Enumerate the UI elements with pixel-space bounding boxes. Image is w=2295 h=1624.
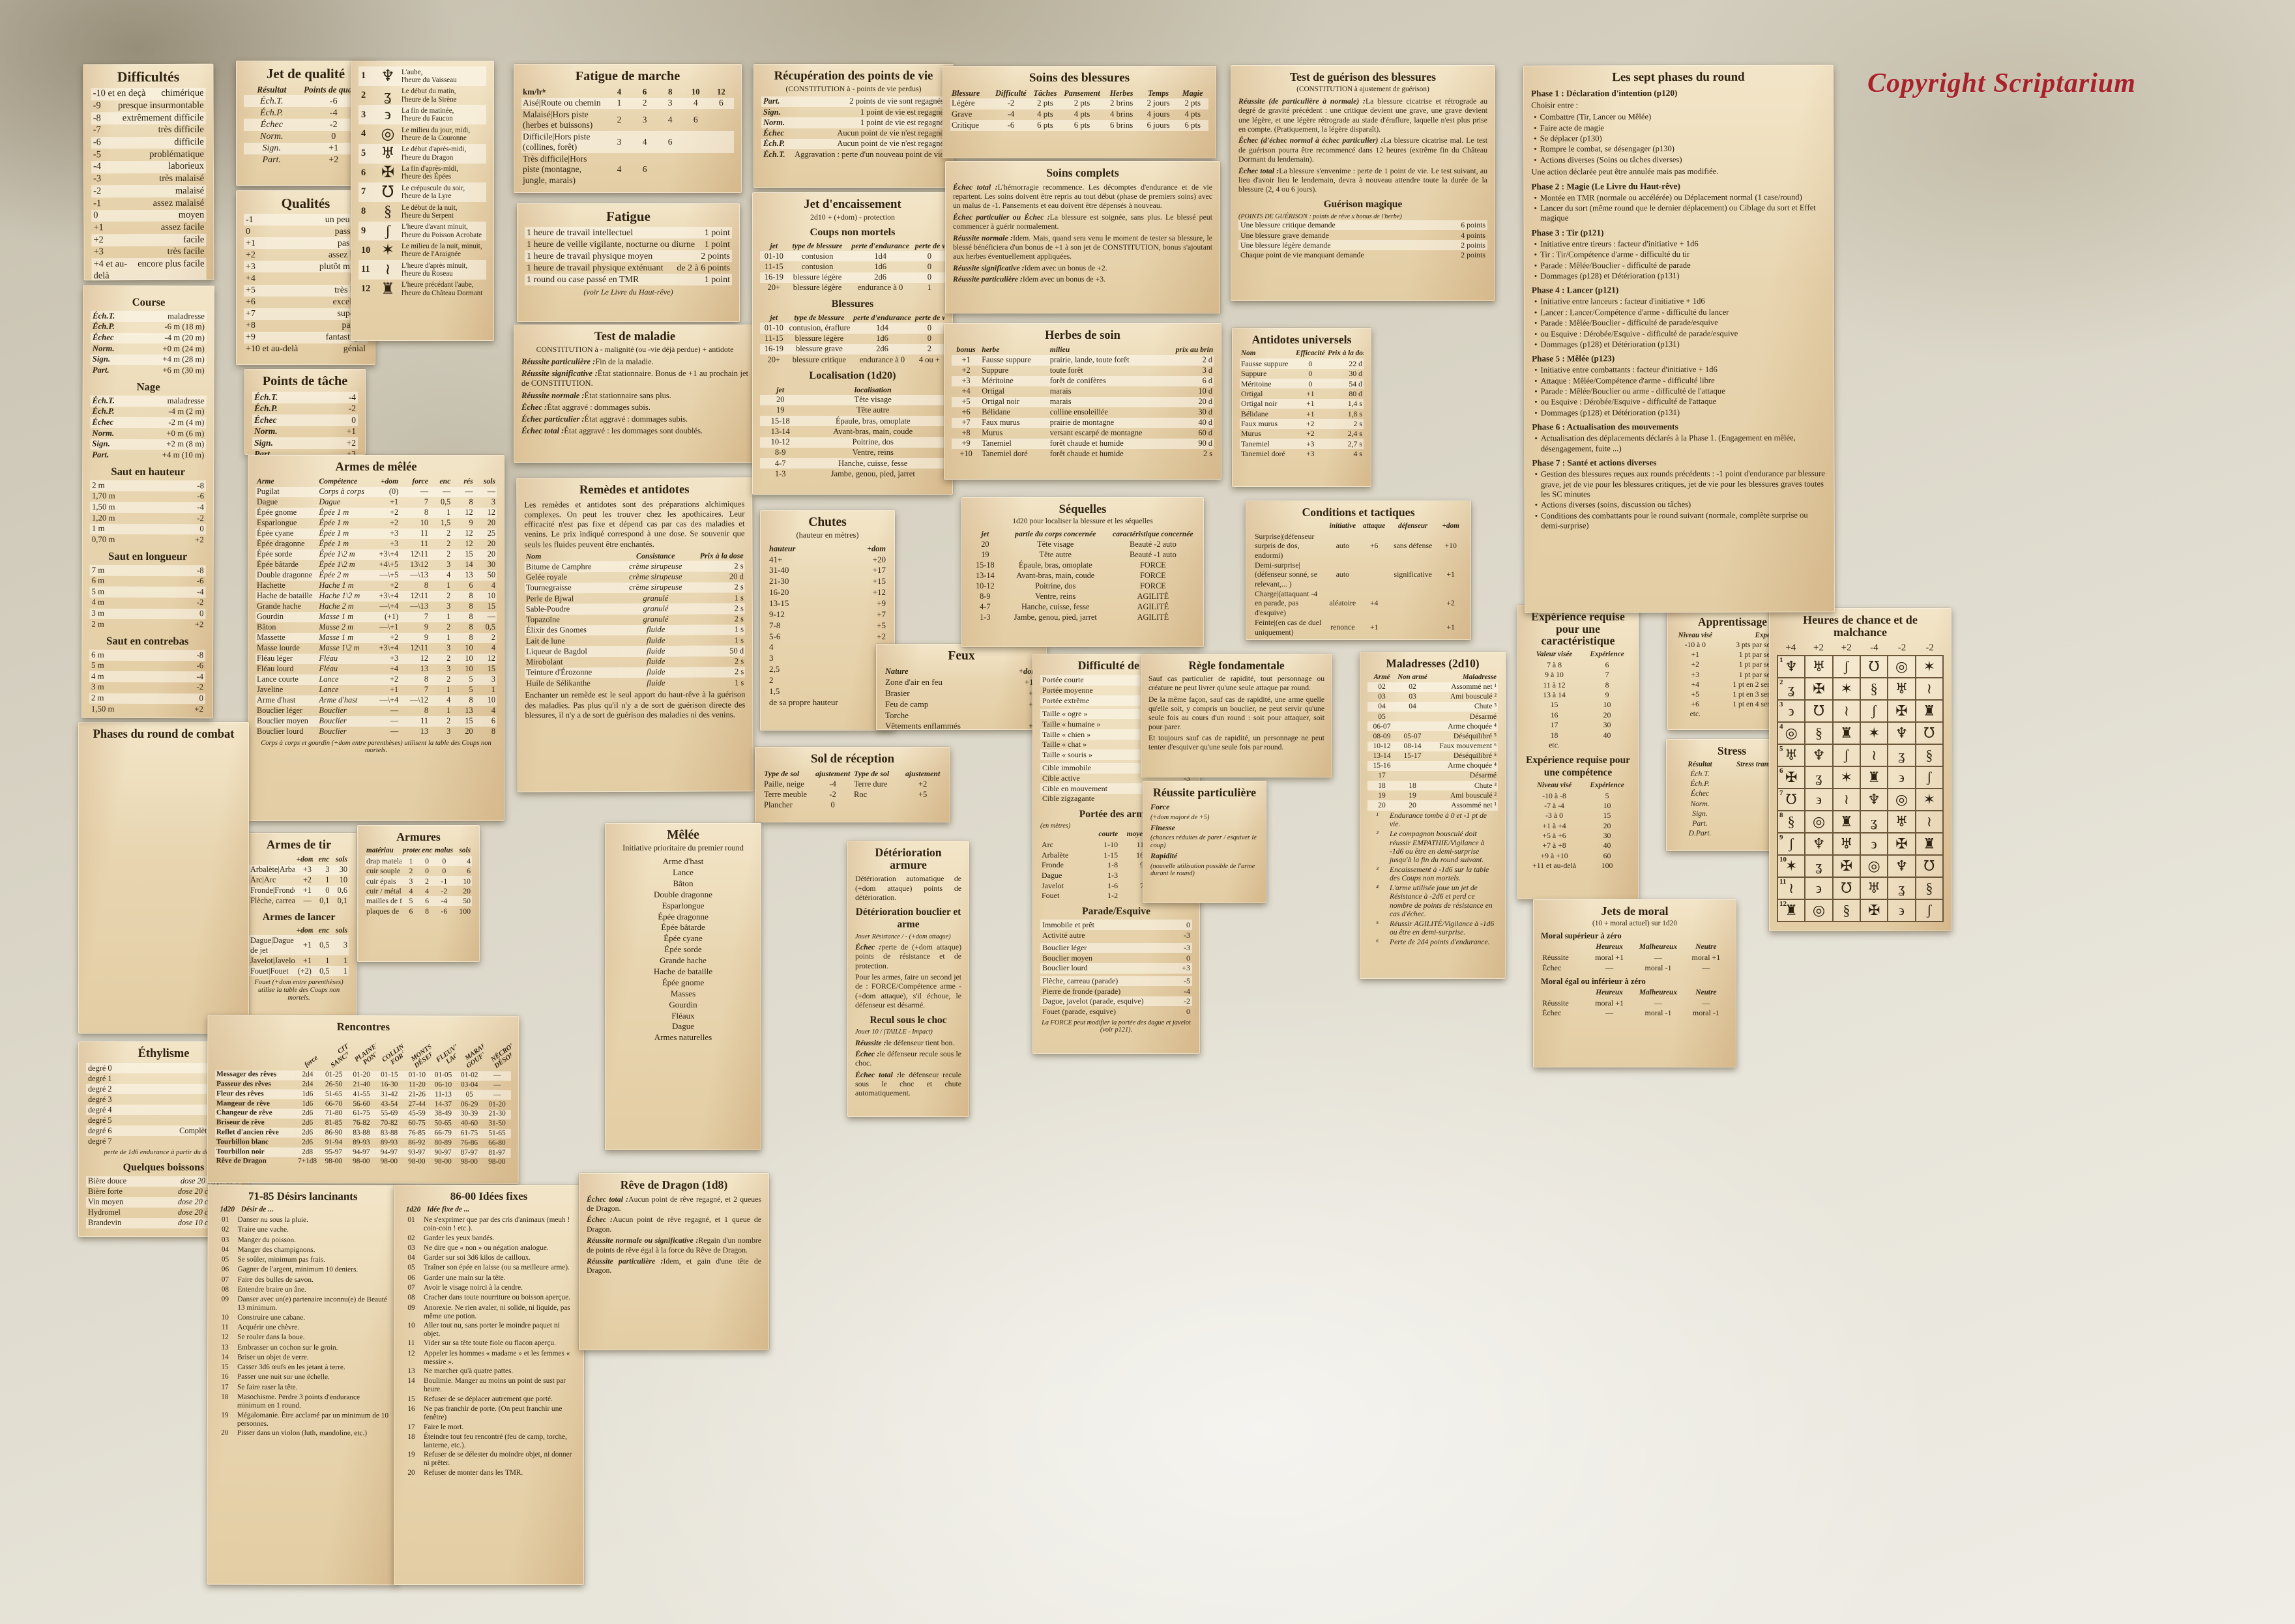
paragraph-text: Et toujours sauf cas de rapidité, un per… (1148, 734, 1324, 751)
table-row: Éch.P.-4 (244, 107, 368, 119)
cell: Chute ³ (1429, 702, 1498, 712)
table-row: 9-12+7 (768, 609, 887, 620)
cell: 7 (400, 685, 430, 695)
cell: 40-60 (456, 1119, 484, 1129)
vaisseau-icon: ♆ (1805, 744, 1832, 766)
table-row: Teinture d'Érozonnefluide2 s (525, 667, 745, 678)
cell: — (1633, 998, 1684, 1008)
kv-key: Cible zigzagante (1042, 794, 1094, 804)
faucon-icon: ϶ (1860, 833, 1888, 855)
cell: 1 s (694, 593, 745, 604)
kv-key: 1 heure de veille vigilante, nocturne ou… (527, 239, 695, 250)
cell: 70-82 (375, 1119, 403, 1129)
cell: Bâton (256, 622, 317, 633)
column-header: +dom (295, 925, 313, 935)
centered-list-item: Hache de bataille (613, 966, 753, 978)
table-row: 20Tête visageBeauté -2 auto (969, 539, 1196, 549)
cell: 4 ou + (914, 355, 945, 365)
cell: Éch.P. (244, 107, 300, 119)
hour-line2: l'heure de la Lyre (402, 192, 465, 200)
section-heading: Détérioration bouclier et arme (855, 906, 961, 931)
cell: — (1586, 1008, 1633, 1019)
cell: fluide (617, 646, 694, 657)
cell: aléatoire (1324, 589, 1360, 618)
cell: 4 (658, 109, 683, 131)
cell: moral +1 (1586, 998, 1633, 1008)
column-header: Pansement (1061, 88, 1104, 98)
cell: 1,5 (768, 686, 845, 697)
cell: 03-04 (456, 1080, 484, 1090)
cell: Brasier (884, 688, 1001, 699)
column-header (1541, 943, 1586, 953)
numbered-item: 04Garder sur soi 3d6 kilos de cailloux. (402, 1254, 576, 1263)
chateau-icon: ♜ (1833, 722, 1860, 744)
kv-value: -2 (196, 683, 203, 693)
table-row: 16-20+12 (768, 587, 887, 598)
item-text: Entendre braire un âne. (237, 1286, 390, 1295)
bullet-dot: • (1534, 366, 1537, 375)
cell: —\13 (400, 570, 430, 581)
kv-row: Bouclier lourd+3 (1040, 963, 1192, 974)
cell: 15 (1583, 811, 1631, 820)
numbered-item: ⁵Réussir AGILITÉ/Vigilance à -1d6 ou êtr… (1367, 920, 1498, 937)
bullet-item: •Montée en TMR (normale ou accélérée) ou… (1534, 192, 1826, 203)
vaisseau-icon: ♆1 (1777, 656, 1805, 678)
kv-value: +2 (195, 620, 204, 630)
kv-row: Norm.1 point de vie est regagné (761, 117, 946, 128)
panel-title: Feux (884, 650, 1039, 663)
table-row: HachetteHache 1 m+28164 (256, 581, 497, 591)
couronne-icon: ◎ (1888, 789, 1915, 811)
cell: 1 (330, 955, 349, 966)
cell: 19 (760, 405, 800, 416)
cell: 04 (1367, 702, 1396, 712)
cell: Arme choquée ⁴ (1429, 721, 1498, 731)
lyre-icon: ℧ (1805, 700, 1832, 722)
table-row: 41++20 (768, 554, 887, 565)
cell: 50 d (694, 646, 745, 657)
kv-key: Portée courte (1042, 675, 1084, 685)
cell: Teinture d'Érozonne (525, 667, 617, 678)
cell: Très difficile|Hors piste (montagne, jun… (521, 153, 606, 186)
table-row: 4-7Hanche, cuisse, fesse (760, 458, 945, 469)
kv-value: 0 (1186, 953, 1190, 963)
gm-screen-board: Difficultés-10 et en deçàchimérique-9pre… (0, 0, 2295, 1624)
cell: 19 (969, 549, 1001, 560)
panel-title: Règle fondamentale (1148, 660, 1324, 671)
bullet-item: •Initiative entre tireurs : facteur d'in… (1534, 239, 1826, 250)
panel-title: Réussite particulière (1150, 787, 1259, 799)
cell: Suppure (980, 366, 1049, 376)
cell: 4 pts (1029, 109, 1060, 121)
column-header: 4 (606, 87, 632, 98)
column-header: Efficacité (1294, 349, 1326, 359)
kv-row: Échec-4 m (20 m) (91, 332, 207, 343)
kv-value: Aucun point de vie n'est regagné (837, 139, 944, 149)
kv-value: -8 (196, 650, 203, 661)
paragraph: Échec total :La blessure s'envenime : pe… (1238, 166, 1487, 194)
panel-herbes-de-soin: Herbes de soinbonusherbemilieuprix au br… (944, 323, 1221, 480)
cell: Norm. (244, 131, 300, 143)
encounter-row: Rêve de Dragon7+1d898-0098-0098-0098-009… (215, 1157, 511, 1167)
cell: +7 à +8 (1525, 841, 1583, 850)
encounter-column-header: MONTS DÉSERT (403, 1036, 431, 1071)
table-row: Torche0 (884, 710, 1039, 721)
table-row: +10Tanemiel doréforêt chaude et humide2 … (952, 449, 1214, 459)
cell: 0,6 (330, 886, 349, 896)
cell: 7+1d8 (295, 1157, 320, 1167)
cell: 2 (420, 876, 433, 886)
table-row: Lait de lunefluide1 s (525, 635, 745, 646)
item-text: Se soûler, minimum pas frais. (237, 1256, 390, 1265)
luck-row-number: 9 (1779, 834, 1783, 841)
encounter-row: Changeur de rêve2d671-8061-7555-6945-593… (215, 1109, 511, 1119)
cell: 2 pts (1061, 98, 1104, 109)
kv-row: Échec-2 m (4 m) (90, 417, 206, 428)
cell: fluide (617, 635, 694, 646)
kv-row: 1,70 m-6 (90, 491, 206, 502)
cell: 15-16 (1367, 761, 1396, 771)
kv-key: Taille « souris » (1042, 750, 1092, 760)
bullet-item: •Parade : Mêlée/Bouclier ou arme - diffi… (1534, 386, 1826, 398)
numbered-item: 03Manger du poisson. (216, 1236, 390, 1245)
cell: (+2) (295, 966, 313, 976)
table-header-row: initiativeattaquedéfenseur+dom (1253, 522, 1463, 532)
cell: —\+5 (368, 570, 400, 581)
column-header: Valeur visée (1525, 650, 1583, 660)
table-row: 19Tête autre (760, 405, 945, 416)
table-row: Murus+22,4 s (1240, 429, 1364, 439)
cell: +5 (952, 397, 980, 407)
cell: Faux mouvement ⁶ (1429, 742, 1498, 751)
cell: 9 (452, 518, 474, 529)
kv-key: Bière forte (88, 1187, 123, 1196)
table-row: 10-12Poitrine, dos (760, 437, 945, 448)
table-header-row: matériauprotectionencmalus armuresols (365, 847, 472, 856)
kv-row: Immobile et prêt0 (1040, 920, 1192, 930)
encounter-row: Briseur de rêve2d681-8576-8270-8260-7550… (215, 1118, 511, 1129)
table-row: 8-9Ventre, reinsAGILITÉ (969, 591, 1196, 602)
bullet-item: •Se déplacer (p130) (1534, 133, 1826, 144)
numbered-item: 14Boulimie. Manger au moins un point de … (402, 1377, 576, 1394)
paragraph-lead: Échec total : (1238, 166, 1279, 175)
cell: -10 à 0 (1675, 641, 1716, 650)
column-header: Consistance (617, 551, 694, 562)
numbered-item: 19Refuser de se délester du moindre obje… (402, 1451, 576, 1468)
cell: 10 (455, 876, 472, 886)
cell: 2d6 (295, 1109, 320, 1119)
kv-value: 1 point de vie est regagné (860, 118, 944, 128)
table-row: Réussitemoral +1—moral +1 (1541, 953, 1729, 963)
hour-row: 2ʓLe début du matin,l'heure de la Sirène (358, 86, 486, 106)
cell: — (475, 487, 497, 497)
item-text: Éteindre tout feu rencontré (feu de camp… (424, 1433, 576, 1450)
couronne-icon: ◎ (379, 126, 397, 142)
item-text: Casser 3d6 œufs en les jetant à terre. (237, 1363, 390, 1372)
kv-key: -6 (93, 137, 101, 149)
column-header: Blessure (950, 88, 993, 98)
item-number: 10 (402, 1322, 421, 1339)
cell: 66-79 (431, 1129, 456, 1138)
cell: 10 (475, 695, 497, 706)
kv-key: Immobile et prêt (1042, 920, 1094, 930)
column-header: 12 (709, 87, 734, 98)
hour-line1: Le milieu du jour, midi, (402, 126, 470, 134)
kv-value: -8 (197, 566, 204, 576)
cell: FORCE (1110, 560, 1196, 570)
encounter-column-label: FLEUVE LAC (435, 1043, 456, 1070)
kv-key: Cible active (1042, 774, 1080, 783)
item-number: ⁶ (1367, 938, 1387, 947)
table-header-row: jettype de blessureperte d'endurancepert… (760, 313, 945, 323)
cell: 4 (683, 98, 709, 109)
cell: Avant-bras, main, coude (800, 426, 945, 437)
kv-value: Aggravation : perte d'un nouveau point d… (795, 150, 944, 160)
cell: Fronde|Fronde (249, 886, 295, 896)
cell: 8 (400, 508, 430, 518)
cell: 10 (1583, 700, 1631, 710)
paragraph: De la même façon, sauf cas de rapidité, … (1148, 695, 1324, 732)
table-row: Javelot|Javelot+111 (249, 955, 349, 966)
list-header-die: 1d20 (218, 1206, 237, 1215)
column-header: enc (313, 854, 331, 864)
cell: Bouclier (317, 727, 367, 737)
kv-key: Échec (254, 415, 277, 426)
kv-key: +4 et au-delà (93, 259, 134, 280)
table-row: +11 et au-delà100 (1525, 861, 1631, 871)
cell: 20 (969, 539, 1001, 549)
item-number: 01 (402, 1216, 421, 1233)
cell: Dague|Dague de jet (249, 935, 295, 955)
data-table: +domencsolsArbalète|Arbalète+3330Arc|Arc… (249, 854, 349, 906)
column-header: Heureux (1586, 943, 1633, 953)
hour-label: L'aube,l'heure du Vaisseau (402, 68, 457, 85)
centered-list-item: Esparlongue (613, 901, 753, 912)
cell: 0 (914, 334, 945, 344)
cell: +10 (1438, 531, 1463, 560)
encounter-column-label: NÉCROPOLE DÉSOLATION (490, 1036, 512, 1069)
cell: 01-20 (347, 1071, 375, 1080)
encounter-row: Mangeur de rêve1d666-7056-6043-5427-4414… (215, 1099, 511, 1109)
sirene-icon: ʓ (1888, 744, 1915, 766)
cell: 5 (402, 896, 421, 906)
bullet-dot: • (1534, 376, 1537, 386)
cell: 31-40 (768, 565, 845, 576)
kv-value: 2 points (701, 251, 730, 262)
cell: 1d4 (851, 323, 914, 333)
kv-row: 4 m-4 (89, 671, 205, 682)
hour-row: 9ʃL'heure d'avant minuit,l'heure du Pois… (358, 222, 486, 241)
kv-key: -7 (93, 125, 101, 137)
cell: 41+ (768, 554, 845, 565)
kv-row: 5 m-4 (89, 587, 205, 598)
cell: Demi-surprise|(défenseur sonné, se relev… (1253, 560, 1324, 588)
paragraph: Échec :perte de (+dom attaque) points de… (855, 942, 961, 970)
column-header: Malheureux (1633, 988, 1684, 998)
table-row: Hache de batailleHache 1\2 m+3\+412\1128… (256, 591, 497, 602)
epees-icon: ✠ (1833, 855, 1860, 877)
panel-title: Jet d'encaissement (760, 198, 945, 211)
cell: 71-80 (320, 1109, 348, 1119)
cell: Hache 1 m (317, 581, 367, 591)
numbered-item: 12Appeler les hommes « madame » et les f… (402, 1350, 576, 1367)
cell: Échec (1541, 1008, 1586, 1019)
cell: 17 (1367, 771, 1396, 781)
table-row: 21-30+15 (768, 576, 887, 587)
paragraph: Réussite significative :État stationnair… (521, 369, 748, 389)
cell: 6 pts (1177, 120, 1208, 131)
table-row: 31-40+17 (768, 565, 887, 576)
column-header: Expérience (1583, 781, 1631, 790)
paragraph: Pour les armes, faire un second jet de :… (855, 972, 961, 1010)
cell: 12 (452, 529, 474, 539)
serpent-icon: §8 (1777, 811, 1805, 833)
kv-key: Activité autre (1042, 931, 1085, 940)
cell: Réussite (1541, 953, 1586, 963)
cell: Messager des rêves (215, 1070, 295, 1080)
cell: 01-20 (483, 1100, 511, 1110)
kv-row: +3très facile (91, 246, 206, 258)
cell: 06-10 (431, 1080, 456, 1090)
roseau-icon: ≀ (379, 262, 397, 278)
cell: Faux murus (1240, 419, 1294, 429)
kv-row: Sign.+2 m (8 m) (90, 439, 206, 450)
paragraph: Échec total :Aucun point de rêve regagné… (587, 1195, 761, 1213)
luck-row-number: 6 (1779, 768, 1783, 775)
cell (1388, 589, 1438, 618)
cell: 6 brins (1103, 120, 1140, 131)
panel-title: 86-00 Idées fixes (402, 1191, 576, 1202)
chateau-icon: ♜ (1916, 833, 1943, 855)
cell: Épée cyane (256, 529, 317, 539)
bullet-dot: • (1534, 387, 1537, 397)
cell: 20 d (1175, 397, 1214, 407)
table-row: +1Fausse suppureprairie, lande, toute fo… (952, 355, 1214, 366)
table-row: Terre meuble-2Roc+5 (763, 789, 943, 800)
section-heading: Course (91, 296, 207, 310)
cell: 14 (452, 560, 474, 570)
hour-line1: L'heure d'avant minuit, (402, 223, 482, 231)
item-number: 16 (215, 1373, 235, 1382)
cell: +11 et au-delà (1525, 861, 1583, 871)
table-row: Liqueur de Bagdolfluide50 d (525, 646, 745, 657)
cell: 1 (430, 633, 452, 643)
panel-title: Armures (365, 831, 472, 843)
cell: Bouclier moyen (256, 716, 317, 727)
luck-row-number: 7 (1779, 790, 1783, 797)
cell: 25 (475, 529, 497, 539)
table-row: Part.+2 (244, 154, 368, 166)
cell: +4 (1675, 680, 1716, 689)
kv-value: +2 (194, 704, 203, 715)
panel-feux: FeuxNature+domZone d'air en feu+10Brasie… (876, 644, 1047, 730)
cell: 1d6 (295, 1090, 320, 1099)
numbered-item: 03Ne dire que « non » ou négation analog… (402, 1244, 576, 1253)
kv-row: +2assez bien (244, 249, 368, 261)
luck-row-number: 8 (1779, 812, 1783, 819)
cell: 4 s (1326, 449, 1364, 459)
paragraph: Réussite particulière :Fin de la maladie… (521, 357, 748, 367)
table-header-row: Nature+dom (884, 666, 1039, 676)
table-row: Fléau lourdFléau+41331015 (256, 664, 497, 674)
cell: 3 (430, 602, 452, 612)
data-table: hauteur+dom41++2031-40+1721-30+1516-20+1… (768, 544, 887, 708)
numbered-item: 05Traîner son épée en laisse (ou sa meil… (402, 1264, 576, 1273)
cell: Ortigal (1240, 388, 1294, 398)
cell (903, 800, 943, 811)
sirene-icon: ʓ (1860, 811, 1888, 833)
cell: Épée 1\2 m (317, 549, 367, 560)
poisson-icon: ʃ (1833, 744, 1860, 766)
kv-row: 0,70 m+2 (90, 534, 206, 545)
kv-key: Hydromel (88, 1208, 121, 1217)
kv-key: Sign. (93, 355, 110, 365)
panel-soins-complets: Soins completsÉchec total :L'hémorragie … (945, 161, 1220, 313)
column-header: partie du corps concernée (1001, 529, 1110, 539)
centered-list-item: Armes naturelles (613, 1032, 753, 1043)
cell: 01-10 (403, 1071, 431, 1080)
table-row: Plancher0 (763, 800, 943, 811)
cell: Hache 1\2 m (317, 591, 367, 602)
hour-line2: l'heure du Château Dormant (402, 289, 482, 297)
numbered-item: 10Construire une cabane. (215, 1313, 390, 1322)
roseau-icon: ≀ (1833, 789, 1860, 811)
cell: 20 (475, 539, 497, 549)
item-text: Endurance tombe à 0 et -1 pt de vie. (1390, 811, 1498, 829)
cell: 01-15 (375, 1071, 403, 1080)
paragraph: Échec particulier ou Échec :La blessure … (953, 212, 1212, 231)
kv-row: Norm.+0 m (24 m) (91, 343, 207, 355)
cell: Désarmé (1429, 712, 1498, 721)
cell: 20 (1367, 800, 1396, 810)
cell: +2 (368, 581, 400, 591)
bullet-dot: • (1534, 204, 1537, 224)
poisson-icon: ʃ (1916, 766, 1943, 789)
item-text: Masochisme. Perdre 3 points d'endurance … (237, 1393, 390, 1411)
bullet-item: •Combattre (Tir, Lancer ou Mêlée) (1534, 112, 1826, 123)
cell: 2d6 (295, 1138, 320, 1148)
cell: Masse 1 m (317, 633, 367, 643)
cell: 20 (475, 549, 497, 560)
cell: 10-12 (969, 581, 1001, 591)
kv-key: degré 5 (88, 1116, 112, 1125)
cell: 61-75 (456, 1129, 484, 1138)
kv-row: -1un peu raté (244, 214, 368, 225)
cell: Lance (317, 674, 367, 685)
kv-value: assez malaisé (153, 197, 205, 209)
panel-armes-de-melee: Armes de mêléeArmeCompétence+domforceenc… (248, 455, 504, 821)
table-row: PugilatCorps à corps(0)———— (256, 487, 497, 497)
luck-row-number: 3 (1779, 701, 1783, 708)
kv-key: Vin moyen (88, 1197, 123, 1207)
column-header: localisation (800, 384, 945, 394)
kv-value: 0 (1186, 1007, 1190, 1017)
column-header (249, 854, 295, 864)
item-text: Réussir AGILITÉ/Vigilance à -1d6 ou être… (1390, 920, 1498, 937)
table-row: 1818Chute ³ (1367, 781, 1498, 790)
araignee-icon: ✶10 (1777, 855, 1805, 877)
item-number: 19 (215, 1411, 235, 1428)
panel-sept-phases-du-round: Les sept phases du roundPhase 1 : Déclar… (1523, 65, 1835, 613)
panel-title: Fatigue de marche (521, 70, 734, 83)
kv-row: 1 round ou case passé en TMR1 point (525, 274, 732, 285)
luck-modifier: +4 (1777, 642, 1805, 654)
cell: 31-42 (375, 1090, 403, 1099)
cell: 15-18 (969, 560, 1001, 570)
cell: Javeline (256, 685, 317, 695)
item-number: 08 (402, 1294, 421, 1303)
cell: Surprise|(défenseur surpris de dos, endo… (1253, 531, 1324, 560)
